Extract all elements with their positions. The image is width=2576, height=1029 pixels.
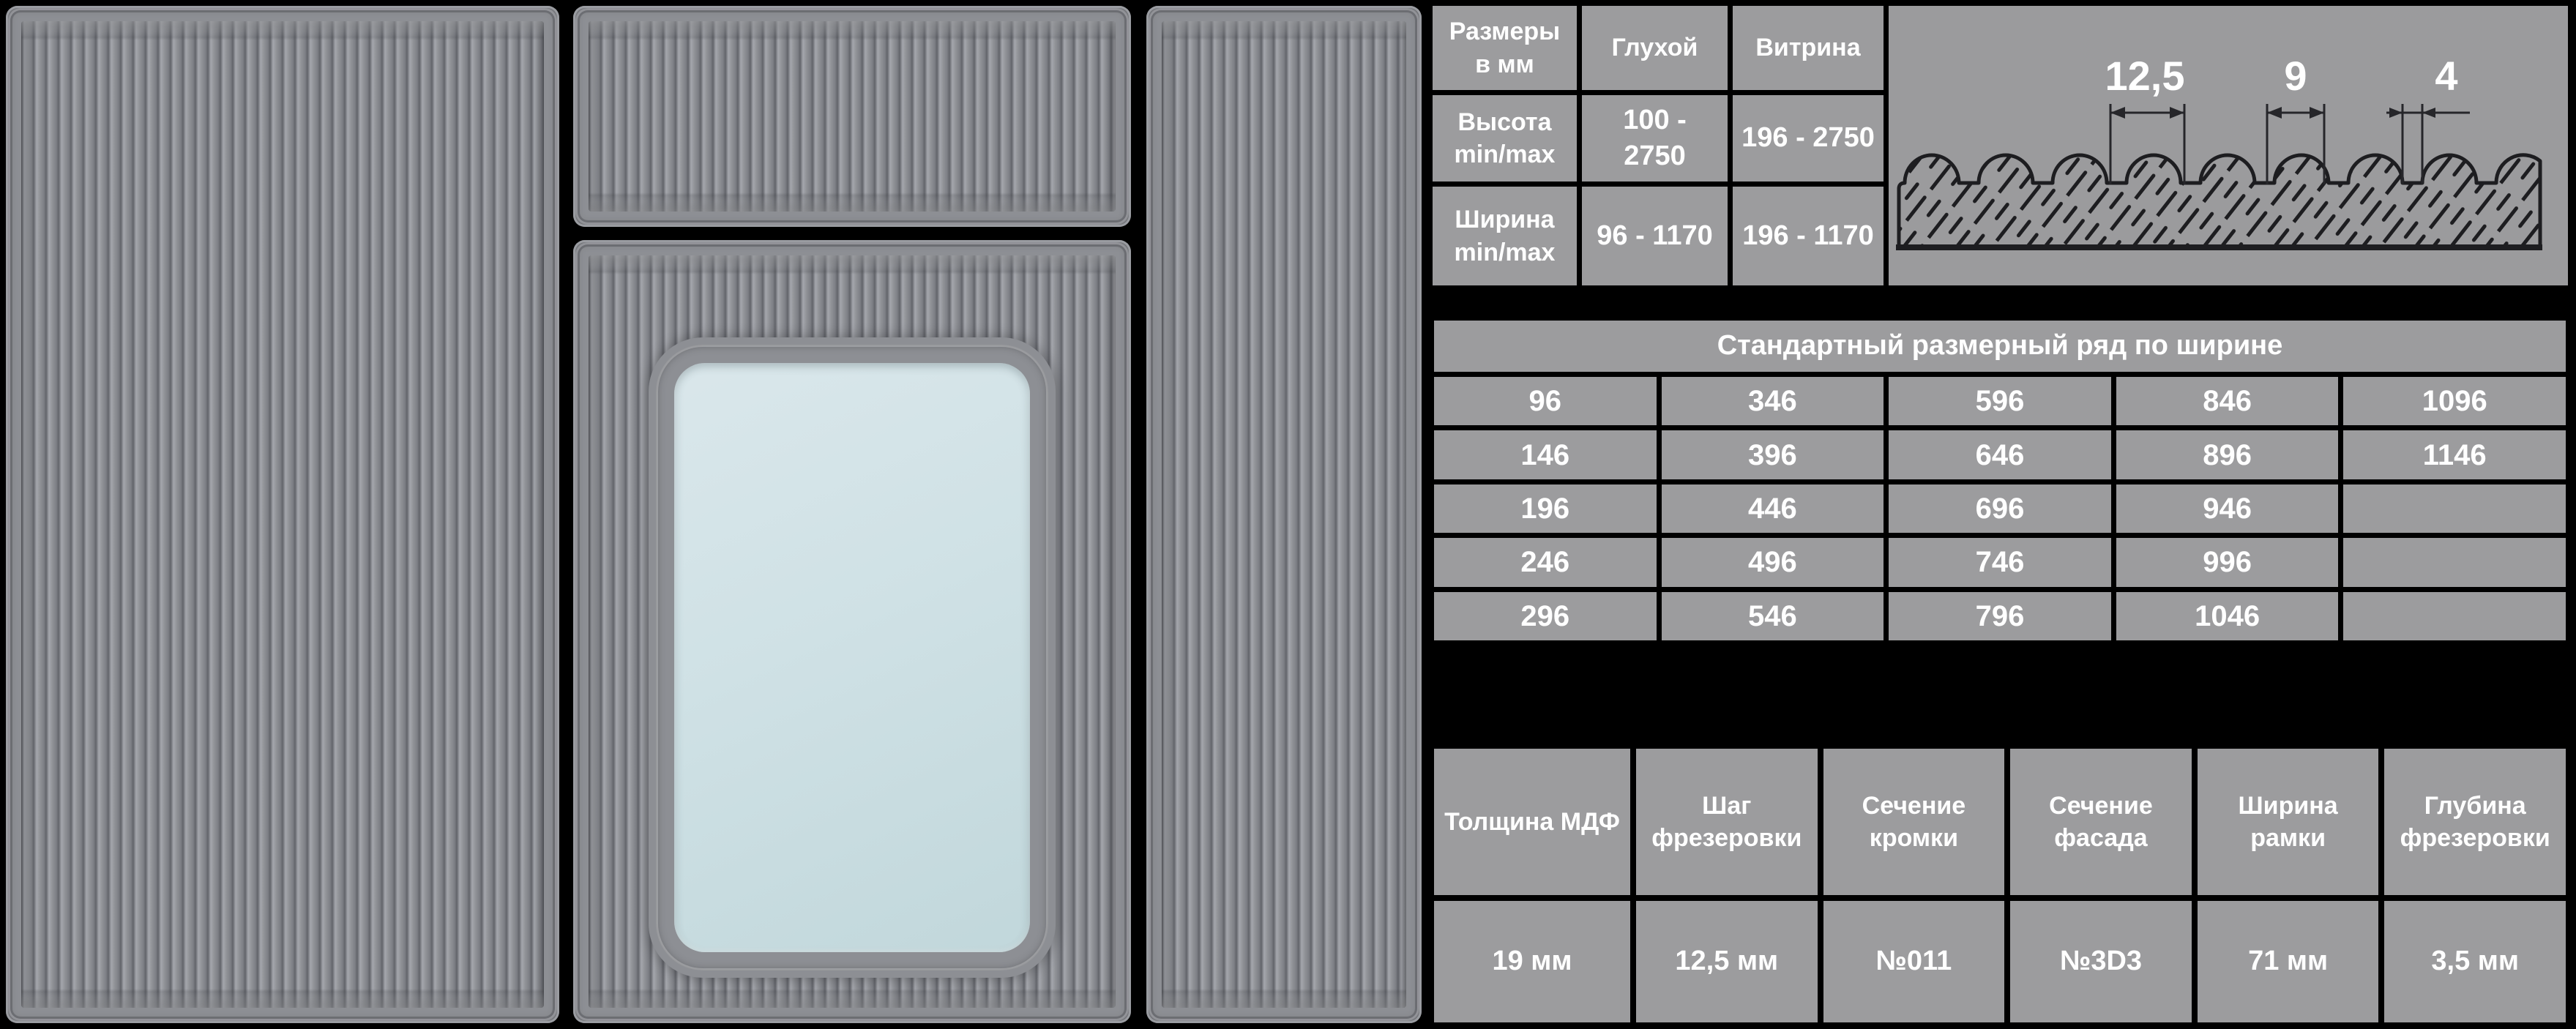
technical-specs-table: Толщина МДФ Шаг фрезеровки Сечение кромк… xyxy=(1434,749,2566,1022)
width-value: 1146 xyxy=(2343,430,2566,479)
solid-door-panel-narrow xyxy=(1146,6,1422,1023)
width-value: 546 xyxy=(1662,592,1884,640)
dimension-step-label: 12,5 xyxy=(2105,53,2185,99)
width-value: 896 xyxy=(2116,430,2339,479)
vitrine-glass xyxy=(674,363,1030,952)
dimension-flute-label: 9 xyxy=(2284,53,2307,99)
spec-value-frame-width: 71 мм xyxy=(2198,901,2379,1022)
milling-profile-drawing: 12,5 9 4 xyxy=(1889,6,2568,285)
vitrine-glass-frame xyxy=(656,345,1048,970)
size-table-corner-header: Размеры в мм xyxy=(1433,6,1577,90)
drawer-front-panel xyxy=(573,6,1131,227)
fluted-surface xyxy=(21,21,544,1008)
width-value: 796 xyxy=(1889,592,2111,640)
size-table-col-header-solid: Глухой xyxy=(1582,6,1728,90)
size-table-height-solid: 100 - 2750 xyxy=(1582,95,1728,182)
spec-value-mdf-thickness: 19 мм xyxy=(1434,901,1630,1022)
width-value: 96 xyxy=(1434,377,1657,425)
width-value: 196 xyxy=(1434,484,1657,533)
width-value: 996 xyxy=(2116,538,2339,586)
width-value: 396 xyxy=(1662,430,1884,479)
vitrine-door-panel xyxy=(573,240,1131,1023)
size-table-row-label-height: Высота min/max xyxy=(1433,95,1577,182)
spec-value-edge-profile: №011 xyxy=(1823,901,2005,1022)
spec-header-mdf-thickness: Толщина МДФ xyxy=(1434,749,1630,895)
spec-value-milling-step: 12,5 мм xyxy=(1636,901,1818,1022)
fluted-surface xyxy=(1162,21,1406,1008)
profile-cross-section: 12,5 9 4 xyxy=(1889,6,2568,285)
width-series-title: Стандартный размерный ряд по ширине xyxy=(1434,321,2566,372)
width-value: 646 xyxy=(1889,430,2111,479)
facade-spec-sheet: Размеры в мм Глухой Витрина Высота min/m… xyxy=(0,0,2576,1029)
dimension-land-label: 4 xyxy=(2435,53,2457,99)
standard-width-series-table: Стандартный размерный ряд по ширине 96 3… xyxy=(1434,321,2566,640)
size-table-width-solid: 96 - 1170 xyxy=(1582,187,1728,285)
width-value: 346 xyxy=(1662,377,1884,425)
spec-header-milling-step: Шаг фрезеровки xyxy=(1636,749,1818,895)
width-value-empty xyxy=(2343,538,2566,586)
width-value: 1096 xyxy=(2343,377,2566,425)
width-value: 1046 xyxy=(2116,592,2339,640)
fluted-surface xyxy=(589,21,1116,212)
spec-value-milling-depth: 3,5 мм xyxy=(2384,901,2566,1022)
width-value: 446 xyxy=(1662,484,1884,533)
width-value: 596 xyxy=(1889,377,2111,425)
width-value: 496 xyxy=(1662,538,1884,586)
size-table-col-header-vitrine: Витрина xyxy=(1733,6,1884,90)
size-limits-table: Размеры в мм Глухой Витрина Высота min/m… xyxy=(1433,6,1884,285)
spec-header-milling-depth: Глубина фрезеровки xyxy=(2384,749,2566,895)
profile-shape xyxy=(1899,155,2540,247)
size-table-row-label-width: Ширина min/max xyxy=(1433,187,1577,285)
size-table-height-vitrine: 196 - 2750 xyxy=(1733,95,1884,182)
width-value: 946 xyxy=(2116,484,2339,533)
width-value: 696 xyxy=(1889,484,2111,533)
spec-header-frame-width: Ширина рамки xyxy=(2198,749,2379,895)
width-value: 146 xyxy=(1434,430,1657,479)
width-value: 846 xyxy=(2116,377,2339,425)
width-value: 746 xyxy=(1889,538,2111,586)
size-table-width-vitrine: 196 - 1170 xyxy=(1733,187,1884,285)
spec-header-edge-profile: Сечение кромки xyxy=(1823,749,2005,895)
width-value-empty xyxy=(2343,484,2566,533)
width-value: 296 xyxy=(1434,592,1657,640)
solid-door-panel-large xyxy=(6,6,559,1023)
width-value: 246 xyxy=(1434,538,1657,586)
spec-value-facade-profile: №3D3 xyxy=(2010,901,2192,1022)
spec-header-facade-profile: Сечение фасада xyxy=(2010,749,2192,895)
width-value-empty xyxy=(2343,592,2566,640)
